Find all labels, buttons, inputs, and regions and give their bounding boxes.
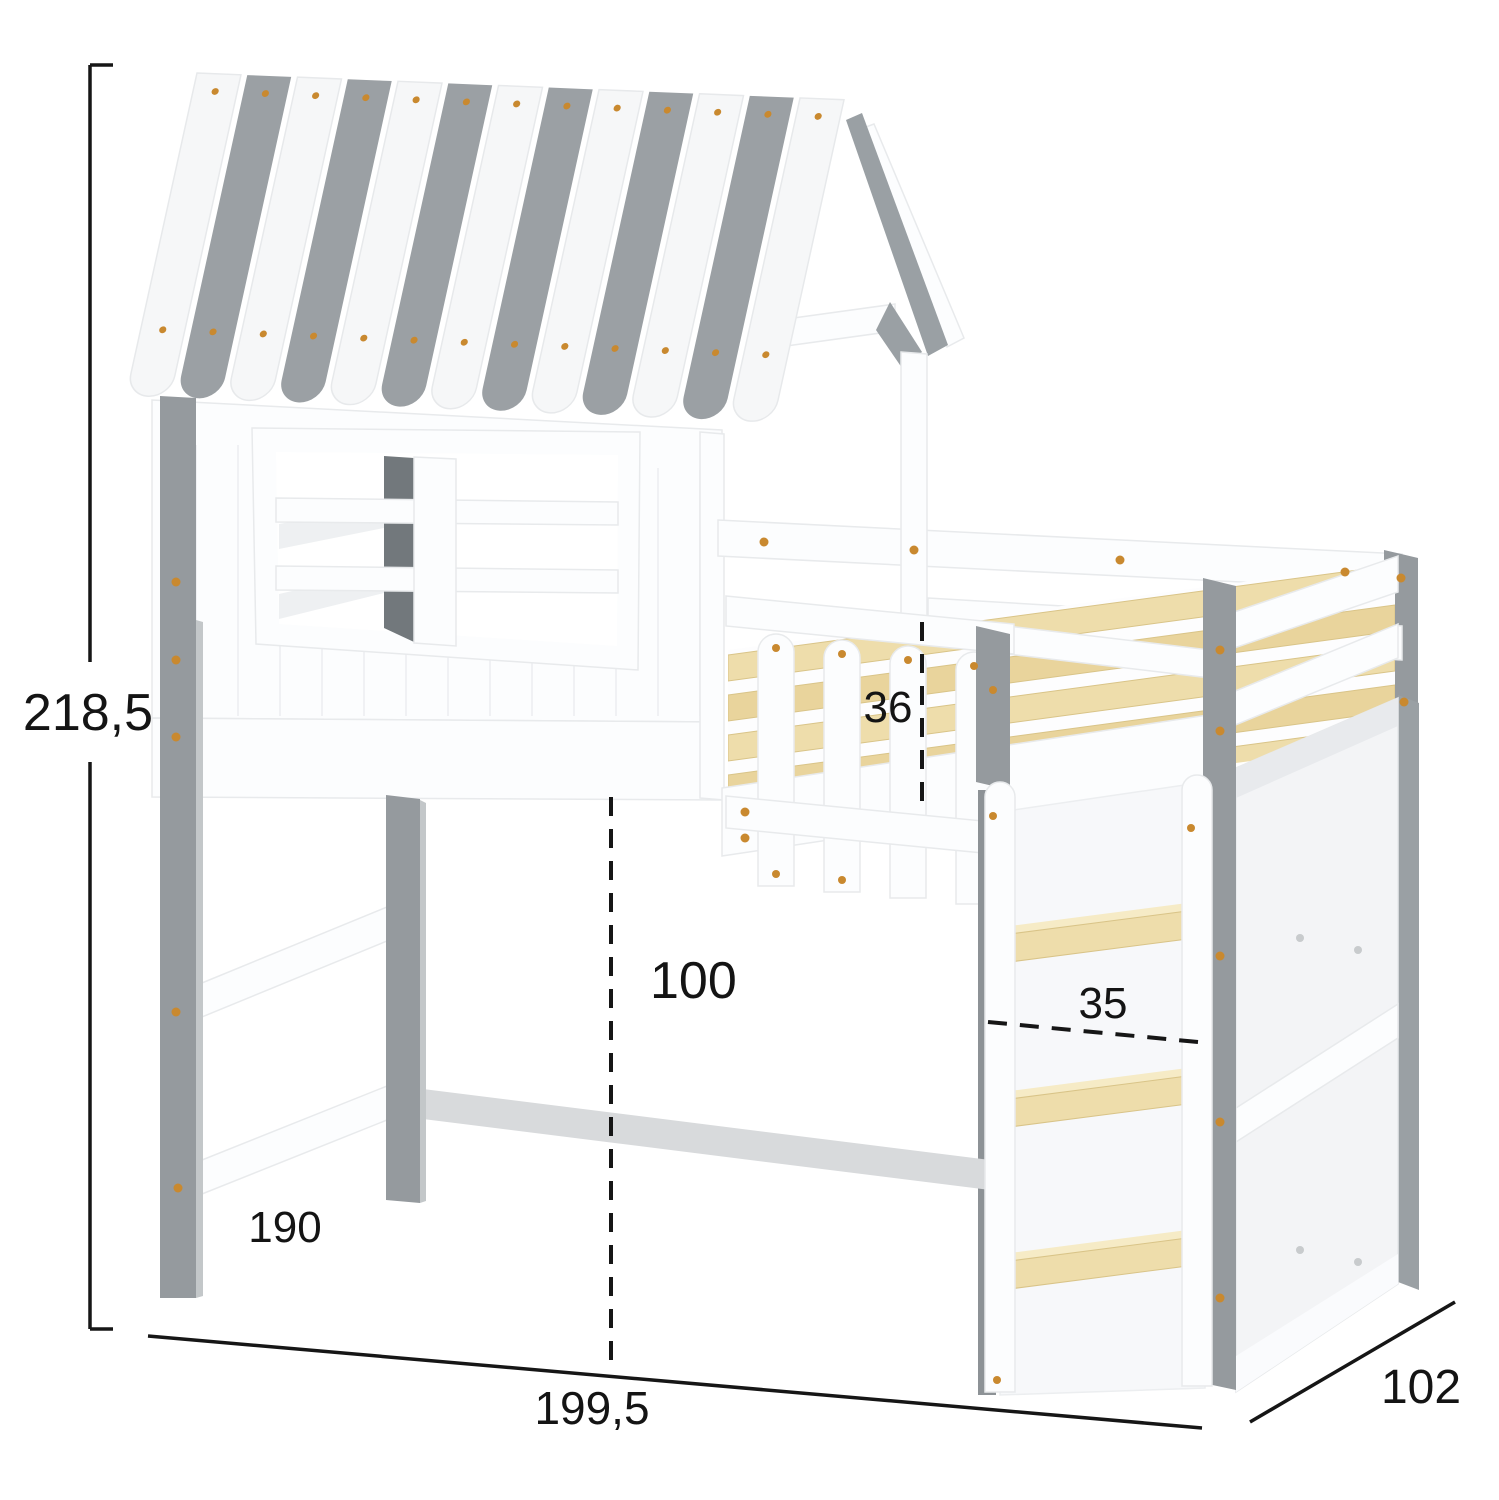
side-brace-lower xyxy=(197,1086,387,1196)
roof xyxy=(126,73,844,422)
picket xyxy=(758,634,794,886)
shelf-unit xyxy=(1236,695,1419,1392)
side-brace-upper xyxy=(197,907,387,1019)
dim-label-depth: 102 xyxy=(1381,1361,1461,1414)
picket xyxy=(824,640,860,892)
under-bed-rail xyxy=(415,1088,990,1190)
dim-label-length: 190 xyxy=(248,1203,321,1252)
leg-back-left xyxy=(386,795,420,1203)
leg-front-left xyxy=(160,396,196,1298)
ladder xyxy=(985,775,1212,1395)
gable-post xyxy=(901,352,927,616)
dim-label-ladder: 35 xyxy=(1079,979,1128,1028)
wall-corner-trim xyxy=(700,432,724,800)
ladder-rail-left xyxy=(985,782,1015,1392)
dim-label-height: 218,5 xyxy=(23,684,153,742)
ladder-rail-right xyxy=(1182,775,1212,1386)
product-dimension-diagram: 218,5 199,5 102 190 100 36 35 xyxy=(0,0,1499,1500)
window-post-gray xyxy=(384,456,414,642)
dim-label-rail: 36 xyxy=(864,683,913,732)
window xyxy=(252,428,640,670)
dim-label-width: 199,5 xyxy=(534,1382,649,1434)
loft-bed-diagram: 218,5 199,5 102 190 100 36 35 xyxy=(0,0,1499,1500)
dim-label-clearance: 100 xyxy=(650,952,737,1010)
